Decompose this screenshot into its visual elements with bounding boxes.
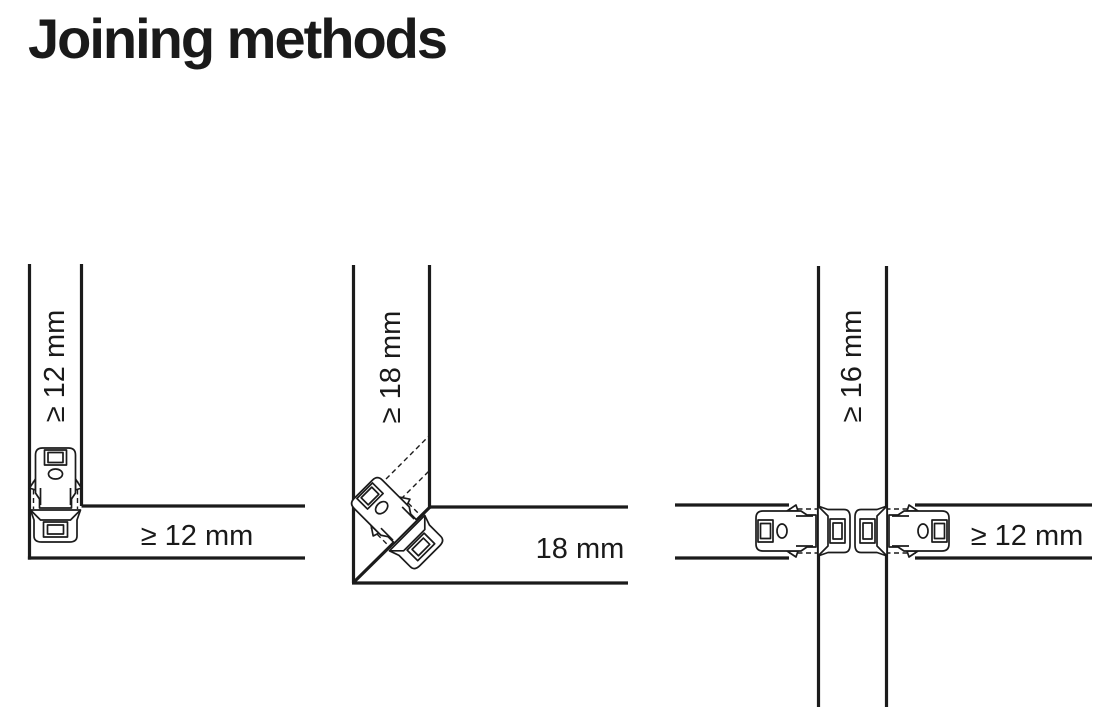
cam-connector-icon <box>345 471 448 574</box>
horizontal-panel-thickness-label: 18 mm <box>536 533 625 565</box>
horizontal-panel-thickness-label: ≥ 12 mm <box>971 520 1084 552</box>
vertical-panel-thickness-label: ≥ 18 mm <box>375 311 407 424</box>
diagram-miter-joint: ≥ 18 mm 18 mm <box>330 255 642 610</box>
diagram-corner-butt-joint: ≥ 12 mm ≥ 12 mm <box>0 255 330 605</box>
cam-connector-icon <box>756 505 850 557</box>
vertical-panel-thickness-label: ≥ 16 mm <box>836 310 868 423</box>
diagram-cross-middle-panel-joint: ≥ 16 mm ≥ 12 mm <box>642 255 1107 724</box>
cam-connector-icon <box>855 505 949 557</box>
horizontal-panel-thickness-label: ≥ 12 mm <box>141 520 254 552</box>
page-title: Joining methods <box>28 10 446 69</box>
vertical-panel-thickness-label: ≥ 12 mm <box>39 310 71 423</box>
manual-page: Joining methods <box>0 0 1107 724</box>
cam-connector-icon <box>30 448 82 542</box>
